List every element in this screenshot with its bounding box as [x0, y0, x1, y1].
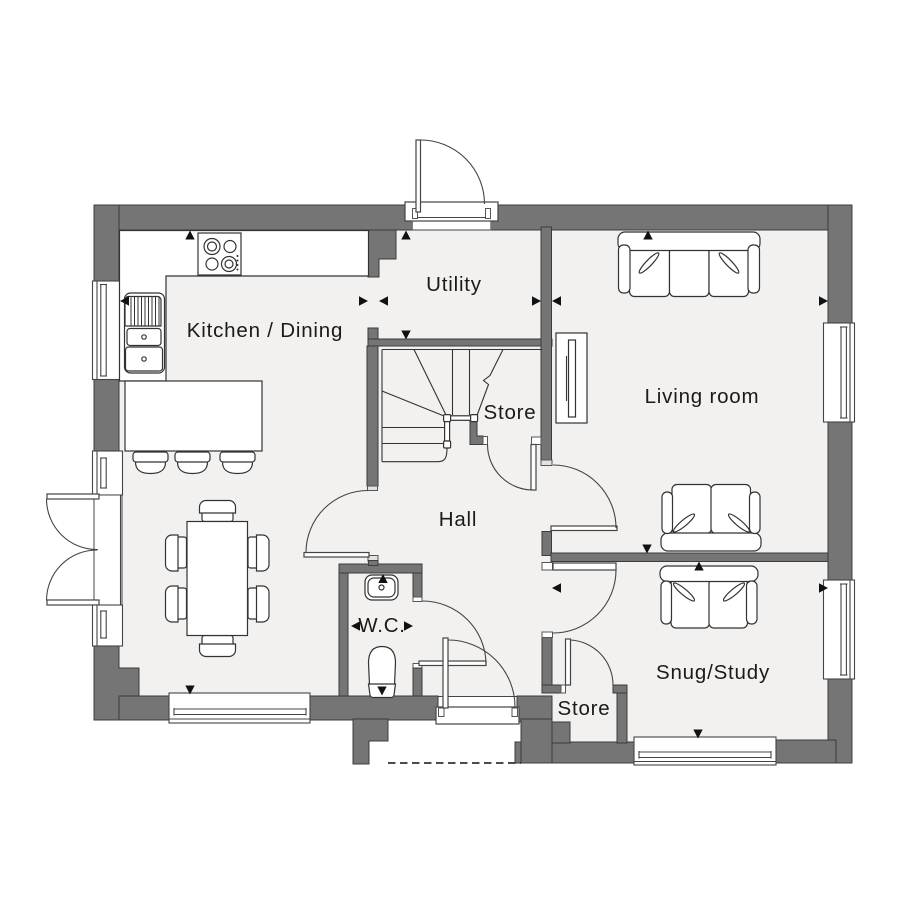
svg-text:Living room: Living room	[645, 385, 760, 408]
svg-text:Store: Store	[558, 697, 611, 720]
svg-text:W.C.: W.C.	[358, 614, 406, 637]
svg-text:Snug/Study: Snug/Study	[656, 661, 770, 684]
svg-text:Hall: Hall	[439, 508, 478, 531]
svg-text:Kitchen / Dining: Kitchen / Dining	[187, 319, 343, 342]
svg-text:Utility: Utility	[426, 273, 482, 296]
svg-text:Store: Store	[484, 401, 537, 424]
